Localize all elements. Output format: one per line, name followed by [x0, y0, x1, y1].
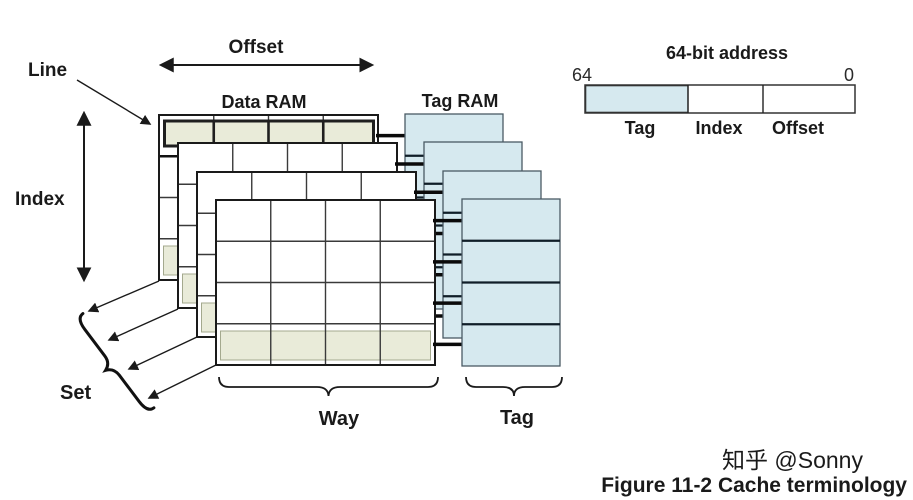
tag-brace: [466, 377, 562, 396]
way-label: Way: [319, 408, 360, 430]
address-breakdown: 64-bit address 64 0 Tag Index Offset: [572, 43, 855, 138]
tag-brace-label: Tag: [500, 407, 534, 429]
line-label: Line: [28, 60, 67, 81]
offset-span-label: Offset: [229, 37, 285, 58]
address-tag-field: [586, 86, 688, 113]
address-low-bit: 0: [844, 65, 854, 85]
data-ram-way-4: [216, 200, 435, 365]
address-field-index-label: Index: [695, 118, 742, 138]
set-label: Set: [60, 382, 91, 404]
set-arrow-way-1: [89, 281, 159, 311]
figure-caption: Figure 11-2 Cache terminology: [601, 474, 907, 497]
data-ram-label: Data RAM: [221, 92, 306, 112]
address-field-offset-label: Offset: [772, 118, 824, 138]
diagram-canvas: Line Offset Data RAM Tag RAM Index Set W…: [0, 0, 913, 500]
set-arrow-way-4: [149, 365, 216, 398]
way-brace: [219, 377, 438, 396]
address-field-tag-label: Tag: [625, 118, 656, 138]
address-high-bit: 64: [572, 65, 592, 85]
line-pointer-arrow: [77, 80, 150, 124]
set-arrow-way-2: [109, 309, 178, 340]
tag-ram-way-4: [462, 199, 560, 366]
index-label: Index: [15, 189, 65, 210]
address-title: 64-bit address: [666, 43, 788, 63]
watermark: 知乎 @Sonny: [722, 447, 863, 473]
tag-ram-label: Tag RAM: [422, 91, 499, 111]
set-arrow-way-3: [129, 337, 197, 369]
cache-terminology-figure: Line Offset Data RAM Tag RAM Index Set W…: [0, 0, 913, 500]
